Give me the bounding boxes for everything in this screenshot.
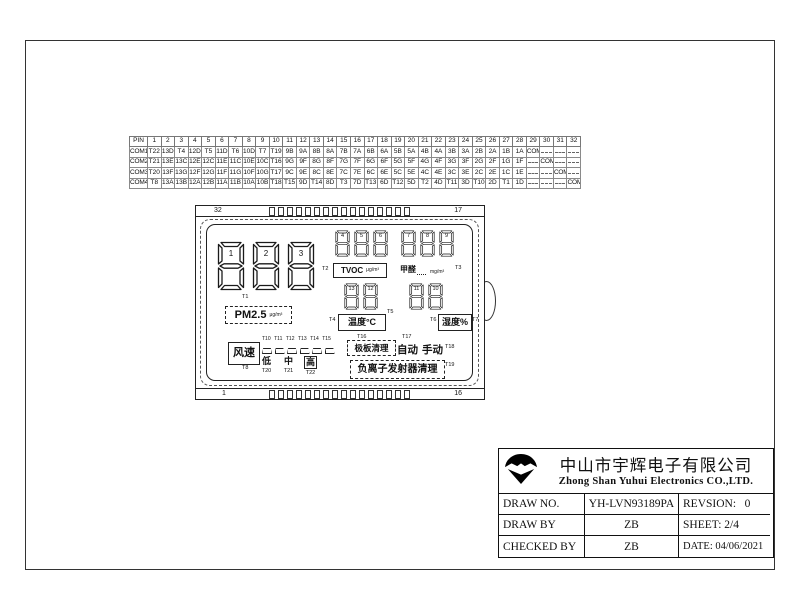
pin-number-label: 32 <box>214 207 222 214</box>
fan-tick-label: T11 <box>274 336 282 342</box>
pin-pad <box>287 207 293 216</box>
draw-by-value: ZB <box>585 515 679 536</box>
temp-legend-box: 温度°C <box>338 314 386 331</box>
pin-header-cell: 28 <box>513 137 527 147</box>
pin-cell: T22 <box>148 147 162 157</box>
pin-cell: 13B <box>175 178 189 188</box>
pin-pad <box>341 207 347 216</box>
pin-header-cell: 7 <box>229 137 243 147</box>
fan-tick-labels: T10T11T12T13T14T15 <box>262 336 331 342</box>
humid-digits: 1110 <box>409 283 443 310</box>
pin-pad <box>341 390 347 399</box>
pin-cell: 8E <box>323 168 337 178</box>
checked-by-label: CHECKED BY <box>499 536 585 557</box>
temp-label: 温度°C <box>348 318 376 327</box>
pin-cell: 10E <box>242 157 256 167</box>
pin-cell <box>540 178 554 188</box>
pin-cell: 8B <box>310 147 324 157</box>
pin-cell: 10B <box>256 178 270 188</box>
pin-cell: T20 <box>148 168 162 178</box>
date-cell: DATE: 04/06/2021 <box>679 536 770 557</box>
t-label: T22 <box>306 370 315 376</box>
draw-no-value: YH-LVN93189PA <box>585 494 679 515</box>
pin-header-cell: 25 <box>472 137 486 147</box>
plate-clean-box: 极板清理 <box>347 340 396 356</box>
lcd-bottom-pin-strip: 1 16 <box>196 388 484 399</box>
pin-cell: 13F <box>161 168 175 178</box>
pin-cell: 6C <box>364 168 378 178</box>
seven-seg-digit: 13 <box>344 283 359 310</box>
tvoc-digits: 456 <box>335 230 388 257</box>
pin-header-cell: 29 <box>526 137 540 147</box>
segment-number: 2 <box>252 249 280 258</box>
pin-cell: T15 <box>283 178 297 188</box>
t-label: T18 <box>445 345 454 351</box>
pin-cell: 11C <box>229 157 243 167</box>
pin-header-cell: 31 <box>553 137 567 147</box>
seven-seg-digit: 12 <box>363 283 378 310</box>
seven-seg-digit: 6 <box>373 230 388 257</box>
pin-cell: 13G <box>175 168 189 178</box>
pin-cell: 13E <box>161 157 175 167</box>
pin-cell: T3 <box>337 178 351 188</box>
pin-pad <box>269 207 275 216</box>
pin-cell: 12B <box>202 178 216 188</box>
pin-header-cell: 16 <box>350 137 364 147</box>
pin-header-row: PIN1234567891011121314151617181920212223… <box>130 137 581 147</box>
auto-label: 自动 <box>397 342 418 357</box>
pin-cell: 2D <box>486 178 500 188</box>
t-label: T21 <box>284 368 293 374</box>
pin-header-cell: 4 <box>188 137 202 147</box>
fan-bar <box>300 348 310 354</box>
fan-bars <box>262 348 335 354</box>
pin-cell <box>553 157 567 167</box>
pin-cell: 7G <box>337 157 351 167</box>
pin-cell <box>567 157 581 167</box>
pin-pad <box>350 390 356 399</box>
sheet-cell: SHEET: 2/4 <box>679 515 770 536</box>
hcho-digits: 789 <box>401 230 454 257</box>
pm25-digits: 123 <box>217 241 315 291</box>
pin-pad <box>368 390 374 399</box>
pin-cell: T17 <box>269 168 283 178</box>
pin-cell: 6G <box>364 157 378 167</box>
pin-cell: 1A <box>513 147 527 157</box>
pin-cell: 5F <box>405 157 419 167</box>
pin-header-cell: 8 <box>242 137 256 147</box>
pin-cell: 11G <box>229 168 243 178</box>
com-row: COM1T2213DT412DT511DT610DT7T199B9A8B8A7B… <box>130 147 581 157</box>
pin-cell <box>526 168 540 178</box>
pin-cell: COM1 <box>526 147 540 157</box>
pin-cell: 6A <box>378 147 392 157</box>
pin-cell: 7B <box>337 147 351 157</box>
segment-number: 5 <box>354 233 369 239</box>
pin-cell: 2C <box>472 168 486 178</box>
segment-number: 13 <box>344 286 359 292</box>
pin-pad <box>404 390 410 399</box>
com-row: COM2T2113E13C12E12C11E11C10E10CT169G9F8G… <box>130 157 581 167</box>
com-row-header: COM3 <box>130 168 148 178</box>
pin-cell <box>526 157 540 167</box>
segment-number: 6 <box>373 233 388 239</box>
pin-number-label: 17 <box>454 207 462 214</box>
pin-header-cell: 18 <box>378 137 392 147</box>
pin-cell: 3G <box>445 157 459 167</box>
ion-clean-box: 负离子发射器清理 <box>350 360 445 379</box>
pin-cell: 13A <box>161 178 175 188</box>
t-label: T20 <box>262 368 271 374</box>
pin-pad <box>386 207 392 216</box>
pin-pad <box>287 390 293 399</box>
pin-cell: 11A <box>215 178 229 188</box>
pin-cell: 4F <box>432 157 446 167</box>
pin-header-cell: 3 <box>175 137 189 147</box>
pin-cell: T1 <box>499 178 513 188</box>
draw-by-label: DRAW BY <box>499 515 585 536</box>
pin-cell: 9C <box>283 168 297 178</box>
tvoc-label: TVOC <box>341 267 363 275</box>
seven-seg-digit: 4 <box>335 230 350 257</box>
revision-cell: REVSION: 0 <box>679 494 770 515</box>
pin-pad <box>395 390 401 399</box>
pin-cell: T6 <box>229 147 243 157</box>
fan-tick-label: T13 <box>298 336 307 342</box>
pm25-unit: μg/m³ <box>269 313 282 318</box>
pin-cell: 12E <box>188 157 202 167</box>
checked-by-value: ZB <box>585 536 679 557</box>
pin-header-cell: 26 <box>486 137 500 147</box>
t-label: T8 <box>242 366 248 372</box>
temp-digits: 1312 <box>344 283 378 310</box>
pin-cell <box>540 147 554 157</box>
pin-header-cell: 22 <box>432 137 446 147</box>
pin-pad <box>305 390 311 399</box>
pin-cell: 1C <box>499 168 513 178</box>
pin-pad <box>359 390 365 399</box>
tvoc-legend-box: TVOC μg/m³ <box>333 263 387 278</box>
pin-cell: 12A <box>188 178 202 188</box>
pin-cell: 7A <box>350 147 364 157</box>
pin-cell: 1D <box>513 178 527 188</box>
pin-cell: 4E <box>432 168 446 178</box>
pin-cell: 5B <box>391 147 405 157</box>
pin-cell: 5A <box>405 147 419 157</box>
fan-bar <box>325 348 335 354</box>
hcho-label: 甲醛 <box>400 264 416 275</box>
pin-cell: 9F <box>296 157 310 167</box>
pin-pad <box>296 207 302 216</box>
pin-cell: 7D <box>350 178 364 188</box>
fan-level: 低T20 <box>259 356 274 376</box>
pin-header-cell: 30 <box>540 137 554 147</box>
pin-cell: COM2 <box>540 157 554 167</box>
fan-tick-label: T15 <box>322 336 331 342</box>
pin-cell: 4A <box>432 147 446 157</box>
pin-header-cell: 14 <box>323 137 337 147</box>
segment-number: 7 <box>401 233 416 239</box>
pin-header-cell: 19 <box>391 137 405 147</box>
pin-cell: 12C <box>202 157 216 167</box>
com-row-header: COM2 <box>130 157 148 167</box>
pin-cell: T4 <box>175 147 189 157</box>
pin-cell: T11 <box>445 178 459 188</box>
pin-cell: 10G <box>256 168 270 178</box>
pin-pad <box>368 207 374 216</box>
fan-speed-box: 风速 <box>228 342 260 365</box>
pin-pad <box>332 207 338 216</box>
pin-header-cell: 24 <box>459 137 473 147</box>
title-block: 中山市宇辉电子有限公司 Zhong Shan Yuhui Electronics… <box>498 448 774 558</box>
pin-cell: T5 <box>202 147 216 157</box>
pin-cell: T8 <box>148 178 162 188</box>
pin-cell: 3C <box>445 168 459 178</box>
pin-cell: 5G <box>391 157 405 167</box>
pin-cell: 9E <box>296 168 310 178</box>
pin-cell: 3B <box>445 147 459 157</box>
pin-header-cell: 17 <box>364 137 378 147</box>
pin-cell: 13C <box>175 157 189 167</box>
segment-number: 1 <box>217 249 245 258</box>
t-label: T19 <box>445 363 454 369</box>
pin-cell: 6F <box>378 157 392 167</box>
pin-cell: 2B <box>472 147 486 157</box>
segment-number: 11 <box>409 286 424 292</box>
pin-pad <box>404 207 410 216</box>
pin-pad <box>314 207 320 216</box>
pin-pad <box>278 390 284 399</box>
seven-seg-digit: 7 <box>401 230 416 257</box>
pin-cell: 8F <box>323 157 337 167</box>
pin-cell: 12F <box>188 168 202 178</box>
pin-cell: 11B <box>229 178 243 188</box>
pin-cell: T16 <box>269 157 283 167</box>
segment-number: 4 <box>335 233 350 239</box>
pin-header-cell: 13 <box>310 137 324 147</box>
segment-number: 12 <box>363 286 378 292</box>
lcd-panel-drawing: 32 17 123 T1 PM2.5 μg/m³ 456 T2 TVOC μg/… <box>195 205 485 400</box>
seven-seg-digit: 3 <box>287 241 315 291</box>
pin-pad <box>296 390 302 399</box>
pin-cell <box>567 147 581 157</box>
fan-bar <box>287 348 297 354</box>
pin-cell: 5E <box>405 168 419 178</box>
pin-cell: 10A <box>242 178 256 188</box>
seven-seg-digit: 10 <box>428 283 443 310</box>
pin-pad <box>278 207 284 216</box>
pin-header-cell: 1 <box>148 137 162 147</box>
pin-header-cell: 5 <box>202 137 216 147</box>
ion-clean-label: 负离子发射器清理 <box>358 365 438 375</box>
pin-pads-bottom <box>269 390 410 399</box>
com-row: COM3T2013F13G12F12G11F11G10F10GT179C9E8C… <box>130 168 581 178</box>
fan-level-label: 低 <box>262 356 271 367</box>
pin-cell: 10C <box>256 157 270 167</box>
pin-cell <box>567 168 581 178</box>
pin-header-cell: 9 <box>256 137 270 147</box>
pin-cell: 9A <box>296 147 310 157</box>
pin-cell: 3F <box>459 157 473 167</box>
pin-table: PIN1234567891011121314151617181920212223… <box>129 136 581 189</box>
pin-cell: 10D <box>242 147 256 157</box>
pin-cell: T7 <box>256 147 270 157</box>
hcho-unit: mg/m³ <box>430 269 444 275</box>
pin-pad <box>269 390 275 399</box>
segment-number: 10 <box>428 286 443 292</box>
company-name-cn: 中山市宇辉电子有限公司 <box>542 456 770 476</box>
company-names: 中山市宇辉电子有限公司 Zhong Shan Yuhui Electronics… <box>542 456 770 487</box>
humid-label: 湿度% <box>442 318 468 327</box>
decimal-dots <box>417 268 426 275</box>
seven-seg-digit: 11 <box>409 283 424 310</box>
pin-cell: T14 <box>310 178 324 188</box>
hcho-legend: 甲醛 mg/m³ <box>400 264 444 275</box>
pin-header-cell: 11 <box>283 137 297 147</box>
pin-cell: 12D <box>188 147 202 157</box>
segment-number: 3 <box>287 249 315 258</box>
pin-cell: 2G <box>472 157 486 167</box>
pin-cell: 4C <box>418 168 432 178</box>
pin-cell: 9D <box>296 178 310 188</box>
company-logo-icon <box>502 453 542 490</box>
t-label: T2 <box>322 267 328 273</box>
pin-cell: 11D <box>215 147 229 157</box>
pin-cell: 13D <box>161 147 175 157</box>
pin-pads-top <box>269 207 410 216</box>
pin-cell: 4G <box>418 157 432 167</box>
com-row-header: COM1 <box>130 147 148 157</box>
pin-cell: T19 <box>269 147 283 157</box>
pin-cell: 1B <box>499 147 513 157</box>
seven-seg-digit: 1 <box>217 241 245 291</box>
pin-cell: T18 <box>269 178 283 188</box>
pin-pad <box>377 207 383 216</box>
segment-number: 9 <box>439 233 454 239</box>
pin-cell: 1E <box>513 168 527 178</box>
pin-header-cell: 32 <box>567 137 581 147</box>
seven-seg-digit: 9 <box>439 230 454 257</box>
pin-cell <box>540 168 554 178</box>
pin-cell: T21 <box>148 157 162 167</box>
pin-pad <box>359 207 365 216</box>
manual-label: 手动 <box>422 342 443 357</box>
pin-header-cell: 15 <box>337 137 351 147</box>
pin-cell: 5C <box>391 168 405 178</box>
pin-cell: 6E <box>378 168 392 178</box>
lcd-top-pin-strip: 32 17 <box>196 206 484 217</box>
pin-cell: 2E <box>486 168 500 178</box>
pin-cell: 10F <box>242 168 256 178</box>
pin-cell: T10 <box>472 178 486 188</box>
pin-cell: 2A <box>486 147 500 157</box>
pin-cell: 8C <box>310 168 324 178</box>
pin-cell: 8G <box>310 157 324 167</box>
fan-speed-label: 风速 <box>233 348 255 359</box>
pin-pad <box>332 390 338 399</box>
pin-cell: 3E <box>459 168 473 178</box>
pin-header-cell: 27 <box>499 137 513 147</box>
fan-bar <box>262 348 272 354</box>
pin-number-label: 16 <box>454 390 462 397</box>
pin-cell: COM4 <box>567 178 581 188</box>
pin-cell: 6D <box>378 178 392 188</box>
company-row: 中山市宇辉电子有限公司 Zhong Shan Yuhui Electronics… <box>499 449 773 494</box>
pin-header-cell: 12 <box>296 137 310 147</box>
drawing-sheet: PIN1234567891011121314151617181920212223… <box>0 0 800 608</box>
tvoc-unit: μg/m³ <box>366 268 379 273</box>
pm25-legend-box: PM2.5 μg/m³ <box>225 306 292 324</box>
pin-pad <box>323 390 329 399</box>
pin-pad <box>314 390 320 399</box>
t-label: T7 <box>472 318 478 324</box>
pin-header-cell: 21 <box>418 137 432 147</box>
pin-cell: 7E <box>350 168 364 178</box>
pin-header-cell: 20 <box>405 137 419 147</box>
pin-cell: 7C <box>337 168 351 178</box>
pin-cell: 1G <box>499 157 513 167</box>
fan-bar <box>275 348 285 354</box>
pin-cell: 3D <box>459 178 473 188</box>
com-row: COM4T813A13B12A12B11A11B10A10BT18T159DT1… <box>130 178 581 188</box>
pin-cell: T12 <box>391 178 405 188</box>
pin-header-cell: PIN <box>130 137 148 147</box>
com-row-header: COM4 <box>130 178 148 188</box>
pin-cell: 8D <box>323 178 337 188</box>
pm25-label: PM2.5 <box>235 310 267 321</box>
pin-number-label: 1 <box>222 390 226 397</box>
pin-cell: 4D <box>432 178 446 188</box>
fan-bar <box>312 348 322 354</box>
pin-cell: 9B <box>283 147 297 157</box>
seven-seg-digit: 2 <box>252 241 280 291</box>
fan-level-label: 高 <box>304 356 317 369</box>
pin-cell <box>553 178 567 188</box>
t-label: T1 <box>242 295 248 301</box>
pin-cell <box>526 178 540 188</box>
pin-header-cell: 6 <box>215 137 229 147</box>
t-label: T4 <box>329 318 335 324</box>
pin-cell: 9G <box>283 157 297 167</box>
fan-tick-label: T14 <box>310 336 319 342</box>
pin-cell: 7F <box>350 157 364 167</box>
draw-no-label: DRAW NO. <box>499 494 585 515</box>
title-block-grid: DRAW NO. YH-LVN93189PA REVSION: 0 DRAW B… <box>499 494 773 557</box>
pin-cell: 2F <box>486 157 500 167</box>
company-name-en: Zhong Shan Yuhui Electronics CO.,LTD. <box>542 476 770 487</box>
pin-pad <box>350 207 356 216</box>
pin-pad <box>386 390 392 399</box>
pin-cell: 11F <box>215 168 229 178</box>
pin-pad <box>323 207 329 216</box>
pin-cell: COM3 <box>553 168 567 178</box>
pin-cell: 6B <box>364 147 378 157</box>
segment-number: 8 <box>420 233 435 239</box>
t-label: T3 <box>455 266 461 272</box>
pin-cell: 8A <box>323 147 337 157</box>
fan-level-label: 中 <box>284 356 293 367</box>
pin-cell: 1F <box>513 157 527 167</box>
pin-cell <box>553 147 567 157</box>
seven-seg-digit: 8 <box>420 230 435 257</box>
seven-seg-digit: 5 <box>354 230 369 257</box>
pin-header-cell: 10 <box>269 137 283 147</box>
pin-cell: T13 <box>364 178 378 188</box>
fan-level: 高T22 <box>303 356 318 376</box>
fan-levels: 低T20中T21高T22 <box>259 356 318 376</box>
pin-pad <box>377 390 383 399</box>
humid-legend-box: 湿度% <box>438 314 472 331</box>
